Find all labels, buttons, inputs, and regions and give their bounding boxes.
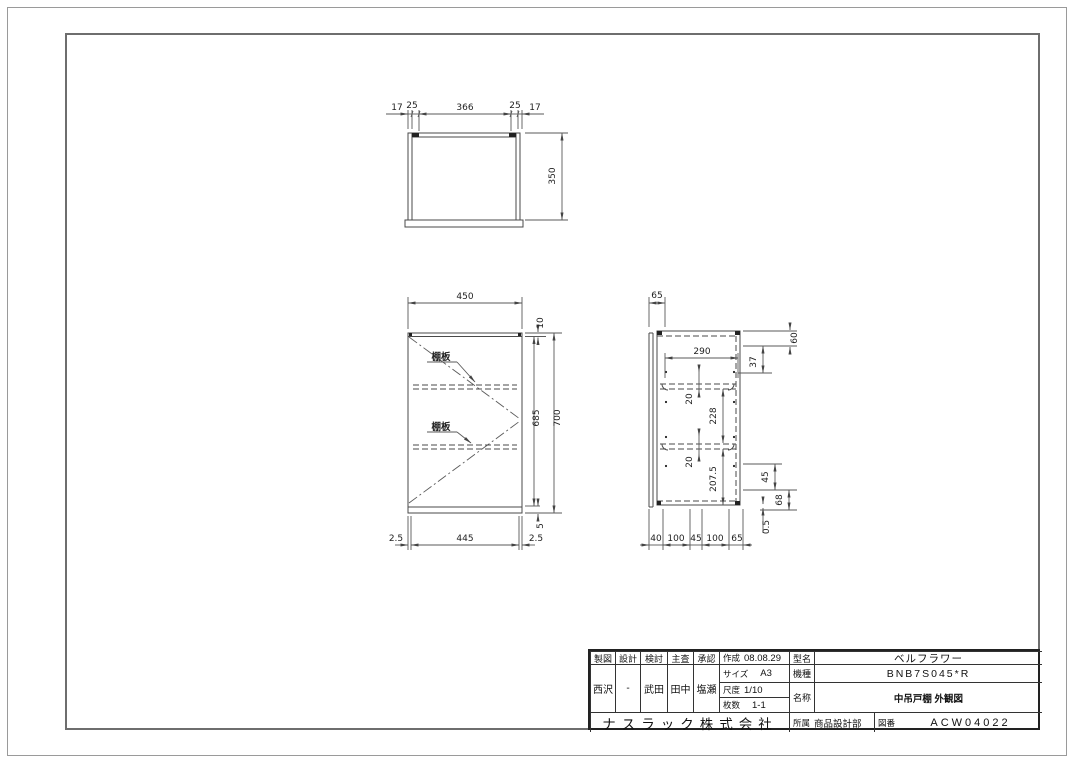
dim-label: 2.5 xyxy=(529,534,543,544)
department-cell: 所属 商品設計部 xyxy=(789,712,874,732)
corner-block xyxy=(412,133,419,137)
dim-label: 17 xyxy=(391,103,402,113)
title-block-header-kento: 検討 xyxy=(640,651,667,664)
dim-label: 37 xyxy=(749,356,759,367)
dim-label: 10 xyxy=(536,317,546,329)
scale-value: 1/10 xyxy=(744,685,763,696)
dim-label: 45 xyxy=(761,471,771,482)
type-value: BNB7S045*R xyxy=(814,664,1042,682)
sheets-label: 枚数 xyxy=(723,699,740,711)
title-block-header-seizu: 製図 xyxy=(590,651,615,664)
signature-cell: 西沢 xyxy=(590,664,615,712)
scale-cell: 尺度 1/10 xyxy=(719,682,789,697)
signature-cell: 田中 xyxy=(667,664,693,712)
drawing-number-label: 図番 xyxy=(878,717,895,729)
dim-label: 65 xyxy=(651,291,662,301)
side-view: 65 290 60 37 20 228 20 207.5 45 68 xyxy=(640,291,800,550)
dim-label: 20 xyxy=(685,393,695,405)
dim-label: 17 xyxy=(529,103,540,113)
dim-label: 450 xyxy=(456,292,473,302)
dim-label: 100 xyxy=(706,534,723,544)
top-view: 17 25 366 25 17 350 xyxy=(386,101,568,227)
shelf-callout: 棚板 xyxy=(431,421,451,433)
dim-label: 700 xyxy=(553,409,563,426)
dim-label: 2.5 xyxy=(389,534,403,544)
door-swing-line xyxy=(409,337,520,419)
drawing-number-value: ACW04022 xyxy=(899,717,1042,729)
dim-label: 228 xyxy=(709,407,719,424)
dim-label: 350 xyxy=(548,167,558,184)
dim-label: 45 xyxy=(690,534,701,544)
dim-label: 25 xyxy=(509,101,520,111)
dim-label: 25 xyxy=(406,101,417,111)
dim-label: 445 xyxy=(456,534,473,544)
dim-label: 68 xyxy=(775,494,785,506)
department-label: 所属 xyxy=(793,717,810,729)
signature-cell: 塩瀬 xyxy=(693,664,719,712)
front-view: 棚板 棚板 450 10 685 700 5 2.5 445 xyxy=(389,292,563,550)
dim-label: 100 xyxy=(667,534,684,544)
created-cell: 作成 08.08.29 xyxy=(719,651,789,664)
title-block-header-sekkei: 設計 xyxy=(615,651,640,664)
sheets-value: 1-1 xyxy=(752,700,766,711)
name-value: 中吊戸棚 外観図 xyxy=(814,682,1042,712)
dim-label: 20 xyxy=(685,456,695,468)
type-label: 機種 xyxy=(789,664,814,682)
size-cell: サイズ A3 xyxy=(719,664,789,682)
created-label: 作成 xyxy=(723,652,740,664)
dim-label: 60 xyxy=(790,332,800,344)
scale-label: 尺度 xyxy=(723,684,740,696)
created-value: 08.08.29 xyxy=(744,653,781,664)
dim-label: 40 xyxy=(650,534,662,544)
dim-label: 5 xyxy=(536,523,546,529)
dim-label: 290 xyxy=(693,347,710,357)
sheets-cell: 枚数 1-1 xyxy=(719,697,789,712)
model-label: 型名 xyxy=(789,651,814,664)
department-value: 商品設計部 xyxy=(814,716,862,730)
dim-label: 366 xyxy=(456,103,473,113)
dim-label: 65 xyxy=(731,534,742,544)
title-block-header-shusa: 主査 xyxy=(667,651,693,664)
size-value: A3 xyxy=(760,668,772,679)
dim-label: 207.5 xyxy=(709,466,719,492)
shelf-callout: 棚板 xyxy=(431,351,451,363)
company-name: ナスラック株式会社 xyxy=(590,712,789,732)
dim-label: 0.5 xyxy=(762,520,772,534)
signature-cell: 武田 xyxy=(640,664,667,712)
model-value: ベルフラワー xyxy=(814,651,1042,664)
size-label: サイズ xyxy=(723,668,748,680)
door-swing-line xyxy=(409,421,520,503)
dim-label: 685 xyxy=(532,409,542,426)
title-block-header-shonin: 承認 xyxy=(693,651,719,664)
drawing-number-cell: 図番 ACW04022 xyxy=(874,712,1042,732)
name-label: 名称 xyxy=(789,682,814,712)
corner-block xyxy=(509,133,516,137)
title-block: 製図 設計 検討 主査 承認 西沢 - 武田 田中 塩瀬 作成 08.08.29… xyxy=(588,649,1040,730)
signature-cell: - xyxy=(615,664,640,712)
